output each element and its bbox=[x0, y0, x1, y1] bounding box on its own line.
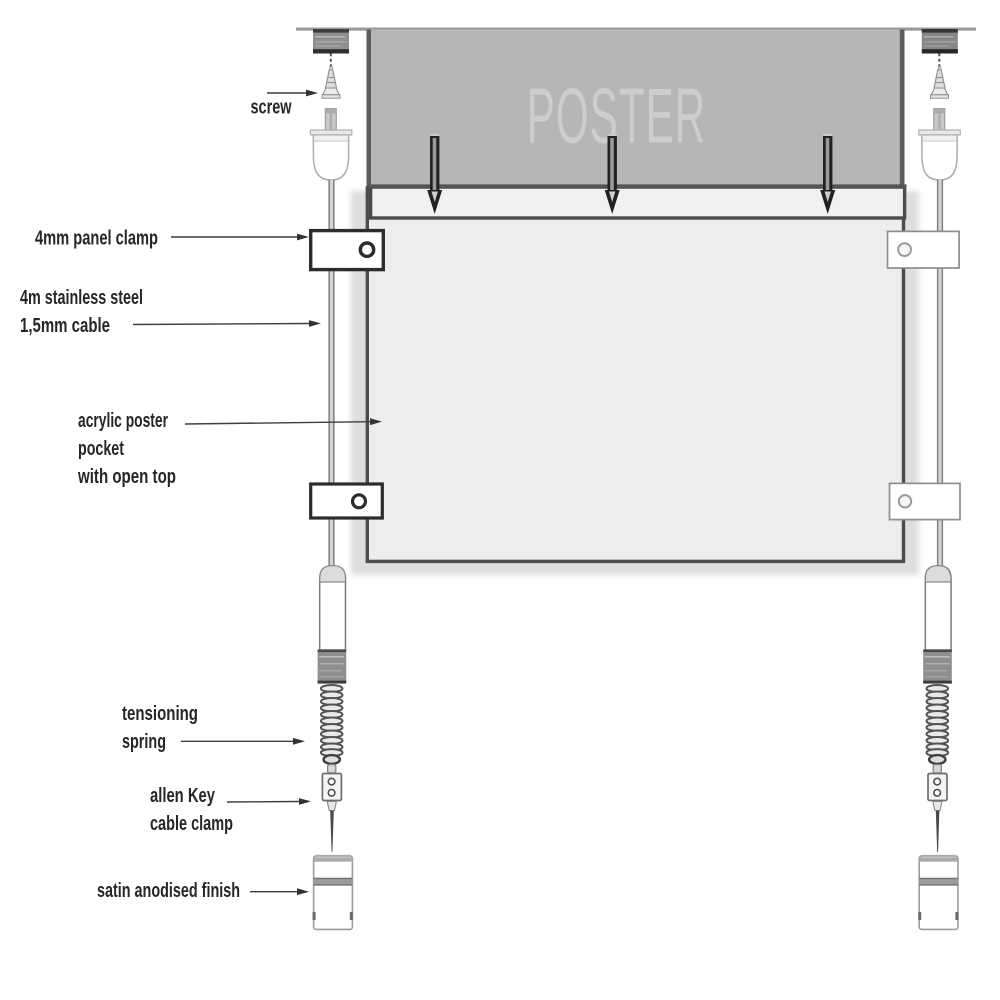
svg-text:spring: spring bbox=[122, 730, 166, 753]
svg-text:tensioning: tensioning bbox=[122, 702, 198, 725]
svg-text:pocket: pocket bbox=[78, 437, 124, 460]
svg-text:allen Key: allen Key bbox=[150, 784, 215, 807]
svg-text:1,5mm cable: 1,5mm cable bbox=[20, 314, 110, 337]
svg-text:satin anodised finish: satin anodised finish bbox=[97, 879, 240, 902]
svg-text:4m stainless steel: 4m stainless steel bbox=[20, 286, 143, 309]
svg-text:cable clamp: cable clamp bbox=[150, 812, 233, 835]
svg-text:4mm panel clamp: 4mm panel clamp bbox=[35, 227, 158, 250]
svg-text:screw: screw bbox=[251, 96, 292, 119]
svg-text:acrylic poster: acrylic poster bbox=[78, 409, 168, 432]
svg-text:with open top: with open top bbox=[77, 465, 176, 488]
